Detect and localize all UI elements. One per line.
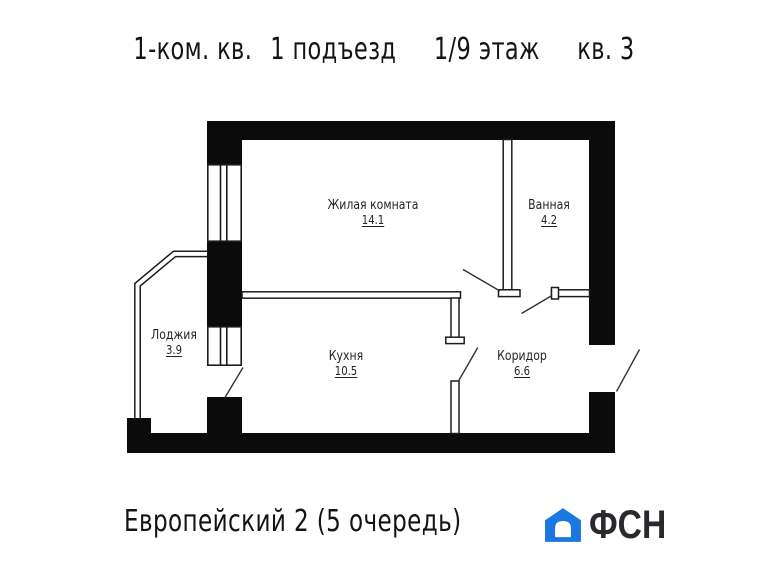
room-name: Кухня	[283, 349, 409, 364]
room-label-loggia: Лоджия 3.9	[111, 328, 237, 358]
partition-kitchen-corridor-upper	[451, 298, 459, 338]
room-label-corridor: Коридор 6.6	[459, 349, 585, 379]
partition-bathroom-foot-cap	[499, 290, 521, 297]
room-label-kitchen: Кухня 10.5	[283, 349, 409, 379]
wall-top	[207, 121, 615, 140]
room-area: 3.9	[111, 343, 237, 358]
partitions	[242, 140, 590, 434]
room-area: 6.6	[459, 364, 585, 379]
room-label-living-room: Жилая комната 14.1	[310, 198, 436, 228]
room-name: Коридор	[459, 349, 585, 364]
door-bathroom-leaf	[522, 296, 553, 314]
room-name: Ванная	[486, 198, 612, 213]
wall-loggia-corner-block	[127, 418, 151, 453]
room-area: 4.2	[486, 213, 612, 228]
partition-kitchen-corridor-lower	[451, 381, 459, 434]
partition-living-kitchen	[242, 292, 461, 298]
logo-house-icon	[544, 507, 582, 543]
floor-plan-page: 1-ком. кв. 1 подъезд 1/9 этаж кв. 3	[0, 0, 768, 576]
room-area: 10.5	[283, 364, 409, 379]
wall-bottom	[127, 433, 615, 453]
partition-bathroom-bottom-cap	[552, 288, 559, 300]
floor-plan-drawing	[0, 0, 768, 576]
wall-top-left-block	[207, 121, 242, 166]
developer-logo: ФСН	[544, 506, 681, 544]
door-entrance-leaf	[617, 350, 640, 392]
room-name: Жилая комната	[310, 198, 436, 213]
room-name: Лоджия	[111, 328, 237, 343]
room-label-bathroom: Ванная 4.2	[486, 198, 612, 228]
wall-left-bottom-block	[207, 397, 242, 435]
project-name: Европейский 2 (5 очередь)	[124, 504, 462, 539]
logo-text: ФСН	[589, 506, 666, 544]
wall-right-upper	[589, 121, 615, 345]
window-living-room	[208, 165, 241, 241]
door-living-room-leaf	[463, 270, 500, 292]
exterior-walls	[127, 121, 615, 453]
partition-kitchen-foot-cap	[446, 337, 464, 343]
door-balcony-leaf	[225, 368, 243, 398]
wall-left-mid-block	[207, 241, 242, 327]
room-area: 14.1	[310, 213, 436, 228]
